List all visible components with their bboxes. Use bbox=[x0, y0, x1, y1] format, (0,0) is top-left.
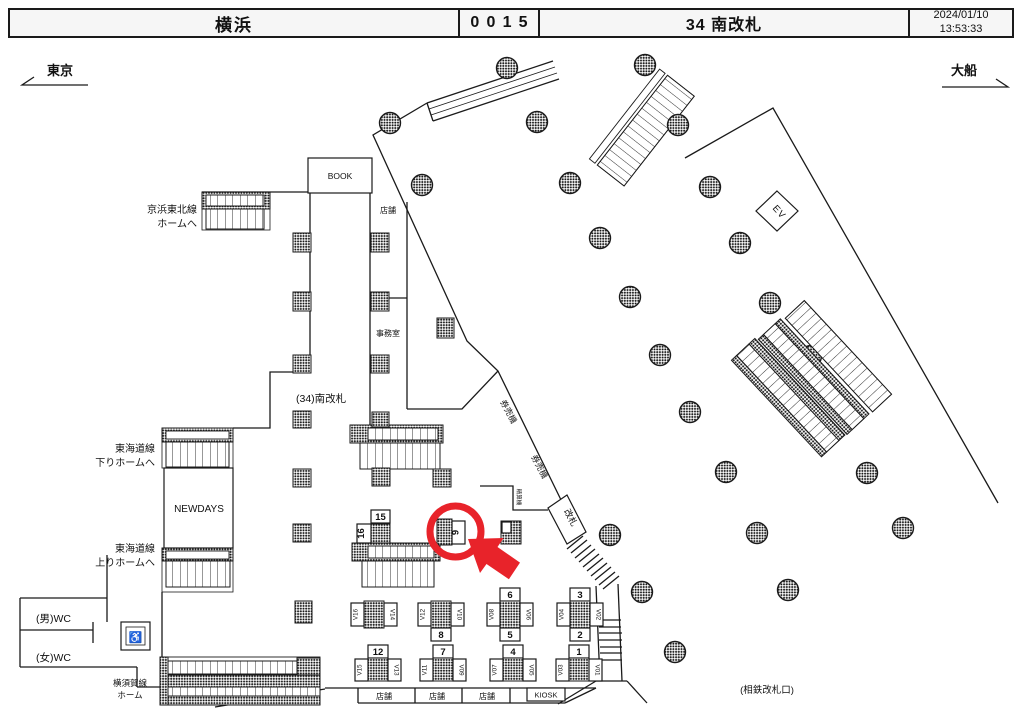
ad-number: 7 bbox=[440, 647, 445, 658]
ad-pillar-1: 1 V03 V01 bbox=[556, 645, 602, 681]
yokosuka-stairs bbox=[160, 657, 320, 705]
left-arrow-icon bbox=[22, 77, 88, 85]
yokosuka-label-2: ホーム bbox=[117, 690, 142, 700]
v-label: V16 bbox=[353, 608, 360, 620]
shop3-label: 店舗 bbox=[479, 691, 495, 701]
v-label: V14 bbox=[389, 609, 396, 621]
ad-pillar-8: V12 V10 8 bbox=[418, 601, 464, 641]
tokaido-up-label-1: 東海道線 bbox=[115, 542, 155, 555]
ad-pillar-v16-v14: V16 V14 bbox=[351, 601, 397, 628]
ad-number-16: 16 bbox=[356, 528, 367, 539]
direction-tokyo-label: 東京 bbox=[47, 63, 73, 78]
ad-number: 12 bbox=[373, 647, 384, 658]
tokaido-down-label-1: 東海道線 bbox=[115, 442, 155, 455]
v-label: V06 bbox=[525, 609, 532, 621]
tokaido-down-label-2: 下りホームへ bbox=[95, 457, 155, 469]
ad-number: 8 bbox=[438, 630, 443, 641]
center-stairs-upper bbox=[350, 425, 451, 487]
keihin-tohoku-stairs bbox=[202, 192, 270, 230]
floorplan-svg: 東京 大船 bbox=[0, 0, 1024, 708]
v-label: V01 bbox=[594, 664, 601, 676]
shop2-label: 店舗 bbox=[429, 691, 445, 701]
keihin-label-2: ホームへ bbox=[157, 218, 197, 230]
book-store: BOOK bbox=[308, 158, 372, 193]
shop-corridor-label: 店舗 bbox=[380, 205, 396, 215]
ad-number: 2 bbox=[577, 630, 582, 641]
direction-ofuna: 大船 bbox=[942, 63, 1008, 87]
newdays-store: NEWDAYS bbox=[164, 468, 233, 548]
center-stairs-lower bbox=[352, 543, 440, 587]
wc-women-label: (女)WC bbox=[36, 651, 71, 664]
ad-pillar-6-5: 6 V08 V06 5 bbox=[487, 588, 533, 641]
ad-pillar-15-16: 15 16 bbox=[356, 510, 390, 543]
kiosk-label: KIOSK bbox=[535, 691, 558, 700]
ad-number: 5 bbox=[507, 630, 513, 641]
v-label: V04 bbox=[559, 608, 566, 620]
ad-number: 4 bbox=[510, 647, 516, 658]
ad-pillar-9: 9 bbox=[437, 519, 465, 545]
v-label: V11 bbox=[422, 664, 429, 675]
accessible-wc: ♿ bbox=[121, 622, 150, 650]
office-label: 事務室 bbox=[376, 328, 400, 338]
book-label: BOOK bbox=[328, 171, 353, 181]
ad-number-9: 9 bbox=[451, 530, 462, 535]
yokosuka-label-1: 横須賀線 bbox=[113, 678, 148, 688]
southeast-escalators bbox=[731, 296, 891, 458]
v-label: V15 bbox=[357, 664, 364, 676]
v-label: V03 bbox=[558, 664, 565, 676]
tokaido-up-stairs bbox=[162, 548, 233, 592]
shop1-label: 店舗 bbox=[376, 691, 392, 701]
v-label: V09 bbox=[458, 664, 465, 676]
ad-number-15: 15 bbox=[375, 512, 386, 523]
wheelchair-icon: ♿ bbox=[129, 631, 143, 644]
elevator: EV bbox=[756, 191, 798, 231]
ad-pillar-12: 12 V15 V13 bbox=[355, 645, 401, 681]
ad-number: 3 bbox=[577, 590, 582, 601]
ad-pillar-hidden bbox=[501, 521, 521, 544]
v-label: V13 bbox=[393, 664, 400, 676]
ad-number: 6 bbox=[507, 590, 512, 601]
v-label: V02 bbox=[595, 609, 602, 621]
direction-tokyo: 東京 bbox=[22, 63, 88, 85]
ticket-machine-label-2: 券売機 bbox=[529, 453, 550, 481]
v-label: V05 bbox=[528, 664, 535, 676]
fare-adjustment-label: 精算機 bbox=[515, 489, 523, 506]
sotetsu-gate-label: (相鉄改札口) bbox=[740, 684, 794, 696]
newdays-label: NEWDAYS bbox=[174, 504, 224, 515]
keihin-label-1: 京浜東北線 bbox=[147, 203, 197, 216]
v-label: V12 bbox=[420, 608, 427, 620]
v-label: V07 bbox=[492, 664, 499, 676]
direction-ofuna-label: 大船 bbox=[951, 63, 977, 78]
ad-pillar-4: 4 V07 V05 bbox=[490, 645, 536, 681]
wc-men-label: (男)WC bbox=[36, 613, 71, 625]
tokaido-up-label-2: 上りホームへ bbox=[95, 557, 155, 569]
v-label: V10 bbox=[456, 609, 463, 621]
station-map-screen: 横浜 0015 34 南改札 2024/01/10 13:53:33 東京 大船 bbox=[0, 0, 1024, 708]
ad-pillar-7: 7 V11 V09 bbox=[420, 645, 466, 681]
right-arrow-icon bbox=[942, 79, 1008, 87]
ad-number: 1 bbox=[576, 647, 582, 658]
minami-gate-label: (34)南改札 bbox=[296, 392, 347, 405]
v-label: V08 bbox=[489, 608, 496, 620]
kiosk: KIOSK bbox=[527, 688, 565, 701]
ticket-machine-label-1: 券売機 bbox=[498, 398, 519, 426]
tokaido-down-stairs bbox=[162, 428, 233, 468]
